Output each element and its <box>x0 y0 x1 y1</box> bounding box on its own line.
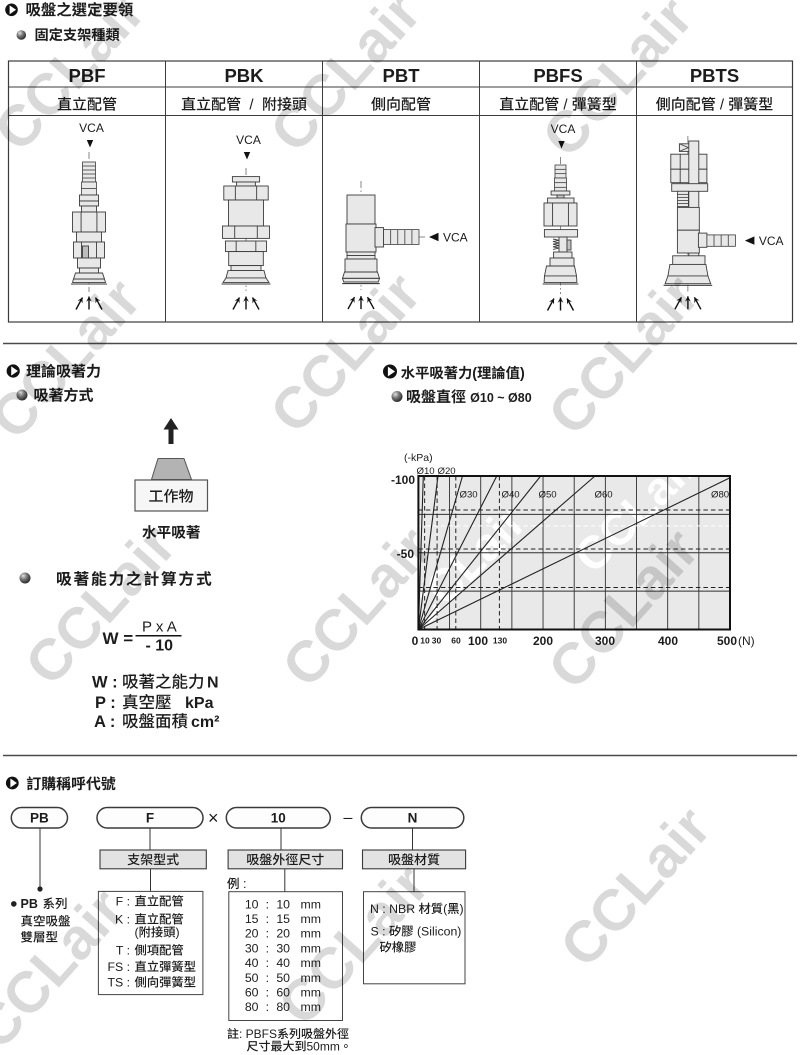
svg-text:P :: P : <box>95 694 116 712</box>
svg-text:Ø50: Ø50 <box>539 490 557 501</box>
svg-text:- 10: - 10 <box>146 638 174 655</box>
svg-text:Ø80: Ø80 <box>711 490 729 501</box>
svg-text:F: F <box>146 811 154 826</box>
svg-text:PB: PB <box>21 897 38 911</box>
svg-text:60: 60 <box>245 986 259 1000</box>
svg-text:N: N <box>408 811 418 826</box>
svg-text:Ø40: Ø40 <box>502 490 520 501</box>
svg-text::: : <box>266 941 269 955</box>
svg-text:(: ( <box>472 366 477 382</box>
svg-text:mm: mm <box>301 897 322 911</box>
svg-text:(N): (N) <box>738 634 755 648</box>
svg-text:100: 100 <box>468 634 488 648</box>
svg-text:T :: T : <box>116 944 130 958</box>
svg-text:40: 40 <box>245 956 259 970</box>
svg-text:PBTS: PBTS <box>690 65 739 86</box>
svg-text:10: 10 <box>420 636 430 646</box>
svg-text:10: 10 <box>271 811 286 826</box>
svg-text:Ø10: Ø10 <box>417 466 435 477</box>
svg-text:80: 80 <box>245 1000 259 1014</box>
svg-text:mm: mm <box>301 912 322 926</box>
svg-text:TS :: TS : <box>107 976 130 990</box>
svg-text:VCA: VCA <box>443 231 468 245</box>
svg-text:FS :: FS : <box>107 960 130 974</box>
svg-text:A :: A : <box>94 713 115 731</box>
svg-text:50: 50 <box>245 971 259 985</box>
svg-text:(Silicon): (Silicon) <box>414 925 462 939</box>
svg-text:): ) <box>460 902 464 916</box>
svg-text:20: 20 <box>276 927 290 941</box>
svg-text:15: 15 <box>245 912 259 926</box>
svg-text:W :: W : <box>92 674 118 692</box>
svg-text:Ø30: Ø30 <box>460 490 478 501</box>
svg-text:500: 500 <box>717 634 737 648</box>
svg-text::: : <box>240 877 247 891</box>
svg-text:(-kPa): (-kPa) <box>404 452 433 464</box>
svg-text:Ø60: Ø60 <box>595 490 613 501</box>
svg-text:Ø20: Ø20 <box>438 466 456 477</box>
svg-text:PB: PB <box>30 811 49 826</box>
svg-text:VCA: VCA <box>759 234 784 248</box>
svg-text::: : <box>266 927 269 941</box>
svg-text:0: 0 <box>412 634 419 648</box>
svg-text:50mm: 50mm <box>307 1040 340 1054</box>
svg-text:P x A: P x A <box>142 619 177 636</box>
svg-text:10: 10 <box>276 897 290 911</box>
svg-text:30: 30 <box>245 941 259 955</box>
svg-text:cm²: cm² <box>191 714 219 731</box>
svg-text:N: N <box>207 675 219 692</box>
svg-text:PBK: PBK <box>224 65 264 86</box>
svg-text:VCA: VCA <box>79 121 104 135</box>
svg-text:30: 30 <box>276 941 290 955</box>
svg-text:×: × <box>208 808 219 828</box>
svg-text:10: 10 <box>245 897 259 911</box>
svg-text:/: / <box>241 97 262 114</box>
svg-text:): ) <box>175 926 179 940</box>
svg-text:30: 30 <box>432 636 442 646</box>
svg-text:400: 400 <box>658 634 678 648</box>
svg-text:Ø10 ~ Ø80: Ø10 ~ Ø80 <box>470 391 532 405</box>
svg-text:VCA: VCA <box>236 133 261 147</box>
svg-text:–: – <box>344 810 353 827</box>
svg-text:-100: -100 <box>391 473 415 487</box>
svg-text::: : <box>266 956 269 970</box>
svg-text:/: / <box>716 97 729 114</box>
svg-text::: : <box>266 912 269 926</box>
svg-text::: : <box>266 1000 269 1014</box>
svg-text::: : <box>266 971 269 985</box>
svg-text:60: 60 <box>451 636 461 646</box>
svg-text:): ) <box>520 366 525 382</box>
svg-text:130: 130 <box>493 636 507 646</box>
svg-text:15: 15 <box>276 912 290 926</box>
svg-text:: PBFS: : PBFS <box>239 1027 277 1041</box>
svg-text:kPa: kPa <box>185 695 214 712</box>
svg-text:20: 20 <box>245 927 259 941</box>
svg-text::: : <box>266 897 269 911</box>
